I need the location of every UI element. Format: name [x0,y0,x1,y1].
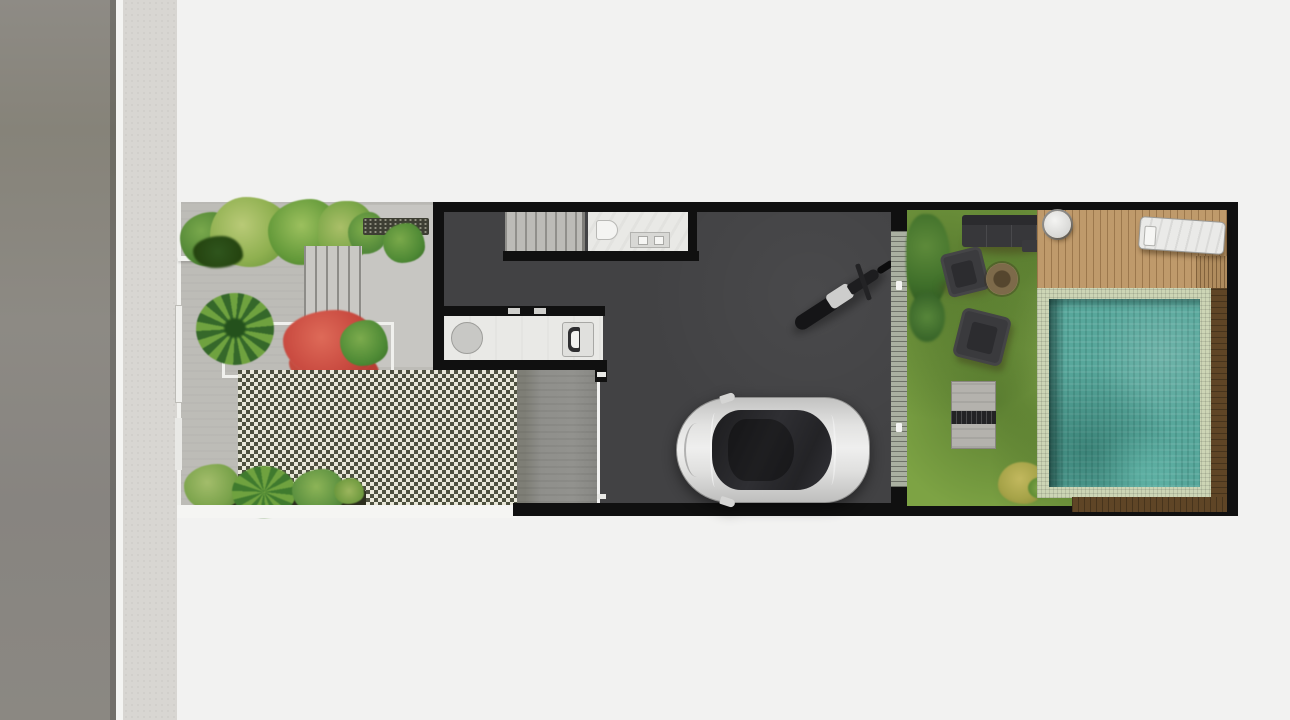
vanity-basin [638,236,648,245]
sidewalk [123,0,177,720]
site-plan-rendering [0,0,1290,720]
round-side-table [1044,211,1071,238]
car-roof-panel [728,419,794,481]
deck-step [1196,256,1227,288]
fern-plant [334,478,364,504]
kitchen-door-mark [534,308,546,314]
pool-water [1049,299,1200,487]
wall-kitchen-bottom [433,360,607,370]
kitchen-door-mark [508,308,520,314]
curb-line [116,0,123,720]
bathroom-vanity [630,232,670,248]
pool-wood-border-right [1211,288,1227,512]
pool-wood-border-bottom [1072,497,1227,512]
pool-shadow-left [1049,299,1065,487]
garden-bench-band [951,411,996,424]
fence-bar-2 [175,418,182,470]
lounger-pillow [1143,226,1156,247]
door-handle [896,423,902,432]
stepping-stone-path [304,246,362,320]
toilet [596,220,618,240]
wall-stair-bottom [503,251,699,261]
road [0,0,116,720]
wall-garage-left [595,360,607,382]
sliding-glass-door [891,231,907,487]
staircase [505,210,585,257]
wall-back-right [1227,202,1238,516]
wall-bathroom-right [688,208,697,254]
car-rear-window-line [826,415,836,485]
hedge [909,292,945,342]
fire-pit [986,263,1018,295]
motorcycle [782,244,906,350]
car-hood-line [684,423,710,477]
garage-apron-texture [517,368,597,503]
palm-plant-core [224,318,246,338]
garage-door-jamb [597,494,606,499]
sink-basin-inner [571,331,579,348]
shrub [383,223,425,263]
wall-left [433,202,444,315]
garden-bottom-edge [177,505,517,518]
door-handle [896,281,902,290]
garage-door-jamb [597,372,606,377]
car [676,397,870,503]
car-windshield-line [710,413,720,487]
motorcycle-body-group [788,252,900,342]
kitchen-round-stool [451,322,483,354]
shrub [340,320,388,366]
shrub-undergrowth [193,236,243,268]
vanity-basin [654,236,664,245]
pool-shadow-top [1049,299,1200,309]
fence-bar [175,305,183,403]
